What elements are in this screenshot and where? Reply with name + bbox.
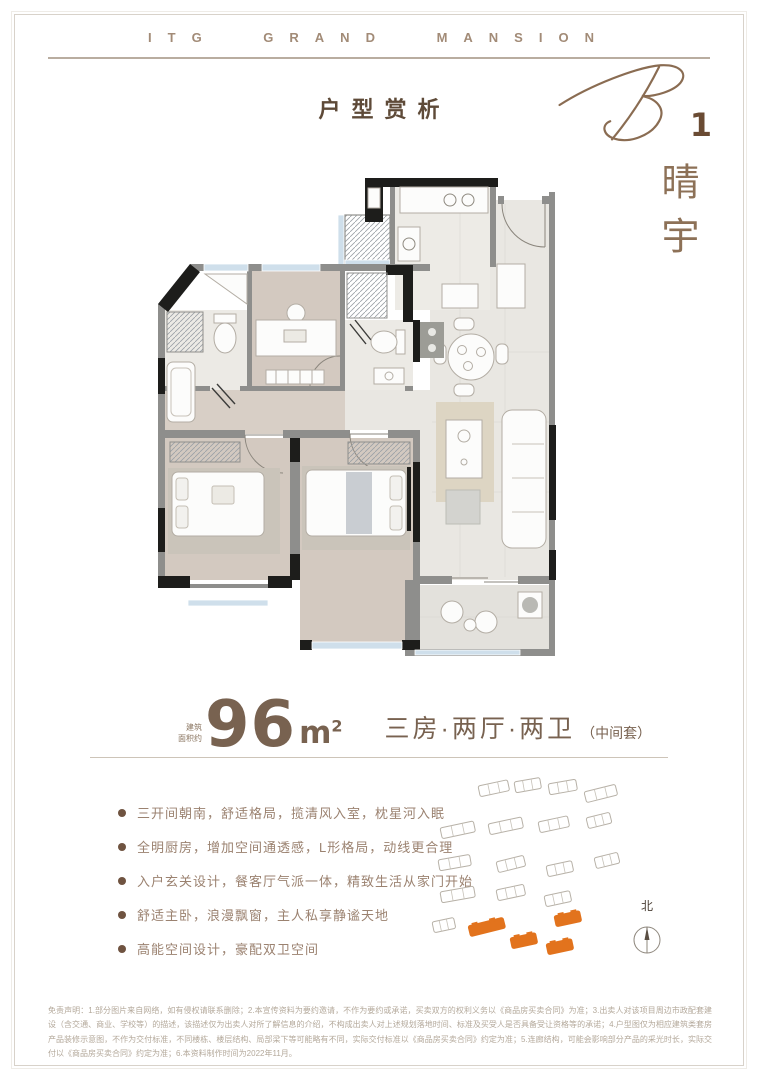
area-unit: m2 <box>299 715 342 751</box>
area-stats: 建筑 面积约 96 m2 三房·两厅·两卫 （中间套） <box>178 690 651 752</box>
bullet-icon <box>118 945 126 953</box>
ac-platform <box>345 215 390 265</box>
sofa <box>502 410 546 548</box>
feature-item: 全明厨房，增加空间通透感，L形格局，动线更合理 <box>118 837 473 856</box>
bullet-icon <box>118 877 126 885</box>
entry-cabinet <box>497 264 525 308</box>
feature-item: 舒适主卧，浪漫飘窗，主人私享静谧天地 <box>118 905 473 924</box>
feature-text: 全明厨房，增加空间通透感，L形格局，动线更合理 <box>137 837 453 856</box>
site-building-highlight <box>554 909 582 927</box>
site-building <box>544 891 572 907</box>
bullet-icon <box>118 843 126 851</box>
feature-item: 入户玄关设计，餐客厅气派一体，精致生活从家门开始 <box>118 871 473 890</box>
feature-text: 舒适主卧，浪漫飘窗，主人私享静谧天地 <box>137 905 389 924</box>
site-building <box>496 884 526 901</box>
feature-list: 三开间朝南，舒适格局，揽清风入室，枕星河入眠 全明厨房，增加空间通透感，L形格局… <box>118 803 473 973</box>
disclaimer-text: 免责声明：1.部分图片来自网络，如有侵权请联系删除；2.本宣传资料为要约邀请，不… <box>48 1004 712 1062</box>
feature-item: 三开间朝南，舒适格局，揽清风入室，枕星河入眠 <box>118 803 473 822</box>
floor-plan <box>150 172 580 677</box>
site-plan-map: 北 <box>428 772 718 977</box>
feature-text: 高能空间设计，豪配双卫空间 <box>137 939 319 958</box>
bullet-icon <box>118 911 126 919</box>
site-building <box>546 861 574 877</box>
site-building <box>584 784 618 802</box>
site-building <box>548 779 577 795</box>
site-building <box>488 817 524 835</box>
site-building <box>496 855 526 872</box>
unit-name-vertical: 晴宇 <box>649 162 704 270</box>
site-building <box>438 854 471 870</box>
layout-description: 三房·两厅·两卫 <box>385 709 576 745</box>
area-label: 建筑 面积约 <box>178 723 202 745</box>
feature-item: 高能空间设计，豪配双卫空间 <box>118 939 473 958</box>
brand-logo-text: ITG GRAND MANSION <box>0 30 758 45</box>
site-building <box>432 917 456 932</box>
site-building <box>514 777 542 792</box>
site-building-highlight <box>468 915 506 936</box>
site-building <box>586 812 612 828</box>
site-building-highlight <box>510 931 538 949</box>
feature-text: 入户玄关设计，餐客厅气派一体，精致生活从家门开始 <box>137 871 473 890</box>
north-arrow-icon: 北 <box>634 899 660 953</box>
layout-note: （中间套） <box>581 723 651 743</box>
bullet-icon <box>118 809 126 817</box>
unit-number: 1 <box>690 106 712 144</box>
area-value: 96 <box>205 698 296 752</box>
svg-text:北: 北 <box>641 899 653 913</box>
site-building-highlight <box>546 937 574 955</box>
feature-text: 三开间朝南，舒适格局，揽清风入室，枕星河入眠 <box>137 803 445 822</box>
stats-divider <box>90 757 668 758</box>
tv-icon <box>407 467 411 531</box>
site-building <box>594 852 620 868</box>
site-building <box>440 886 475 903</box>
site-building <box>440 821 476 839</box>
site-building <box>478 780 510 797</box>
site-building <box>538 816 570 833</box>
